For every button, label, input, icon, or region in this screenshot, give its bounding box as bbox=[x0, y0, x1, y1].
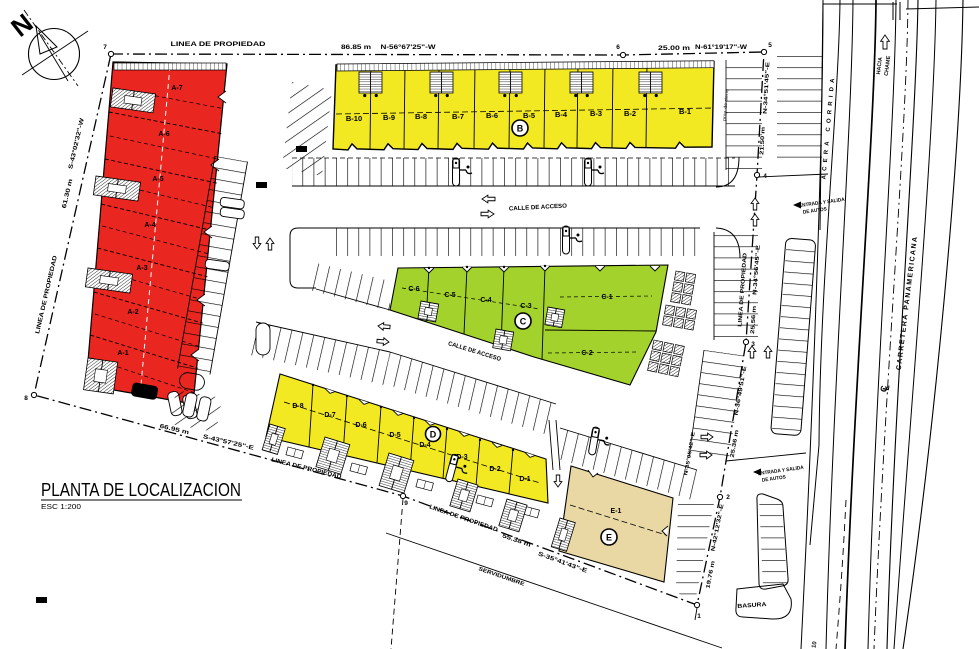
svg-text:2: 2 bbox=[726, 494, 730, 501]
svg-text:D-2: D-2 bbox=[489, 466, 500, 473]
svg-text:A-2: A-2 bbox=[127, 309, 138, 316]
svg-text:25.00 m: 25.00 m bbox=[658, 45, 690, 52]
svg-text:A-7: A-7 bbox=[171, 85, 182, 92]
svg-text:D-8: D-8 bbox=[292, 403, 303, 410]
svg-text:D-7: D-7 bbox=[324, 412, 335, 419]
svg-text:9: 9 bbox=[404, 500, 408, 507]
svg-text:C: C bbox=[520, 317, 527, 327]
svg-text:1: 1 bbox=[697, 613, 701, 620]
svg-text:B: B bbox=[517, 124, 524, 134]
svg-text:B-10: B-10 bbox=[346, 114, 362, 123]
svg-text:C-6: C-6 bbox=[408, 286, 419, 293]
svg-text:7: 7 bbox=[103, 44, 107, 51]
svg-text:A-3: A-3 bbox=[136, 265, 147, 272]
svg-text:B-7: B-7 bbox=[452, 112, 464, 121]
svg-text:ESC 1:200: ESC 1:200 bbox=[41, 502, 81, 511]
svg-text:B-6: B-6 bbox=[486, 111, 498, 120]
svg-text:B-5: B-5 bbox=[523, 111, 535, 120]
svg-text:A-6: A-6 bbox=[158, 131, 169, 138]
svg-text:N-56°67'25"-W: N-56°67'25"-W bbox=[381, 43, 437, 51]
svg-text:C-4: C-4 bbox=[480, 297, 491, 304]
svg-text:E: E bbox=[606, 533, 612, 543]
svg-text:D-4: D-4 bbox=[419, 442, 430, 449]
svg-text:C-1: C-1 bbox=[601, 294, 612, 301]
svg-text:N-61°19'17"-W: N-61°19'17"-W bbox=[695, 43, 748, 51]
svg-text:86.85 m: 86.85 m bbox=[341, 44, 371, 51]
svg-text:A-4: A-4 bbox=[144, 222, 155, 229]
svg-text:PLANTA DE LOCALIZACION: PLANTA DE LOCALIZACION bbox=[41, 480, 241, 500]
svg-text:B-9: B-9 bbox=[383, 113, 395, 122]
svg-text:C-2: C-2 bbox=[581, 350, 592, 357]
svg-text:LINEA DE PROPIEDAD: LINEA DE PROPIEDAD bbox=[171, 41, 266, 48]
svg-text:C-3: C-3 bbox=[520, 303, 531, 310]
svg-text:5: 5 bbox=[768, 42, 772, 49]
svg-text:D-5: D-5 bbox=[389, 432, 400, 439]
svg-text:A-1: A-1 bbox=[117, 350, 128, 357]
svg-text:B-1: B-1 bbox=[679, 107, 691, 116]
svg-text:B-4: B-4 bbox=[555, 110, 568, 119]
svg-text:6: 6 bbox=[616, 44, 620, 51]
svg-text:8: 8 bbox=[24, 395, 28, 402]
svg-text:B-8: B-8 bbox=[415, 112, 427, 121]
svg-text:E-1: E-1 bbox=[611, 508, 622, 515]
svg-text:B-3: B-3 bbox=[590, 109, 602, 118]
svg-text:D-1: D-1 bbox=[519, 476, 530, 483]
svg-text:C-5: C-5 bbox=[444, 292, 455, 299]
svg-text:D-6: D-6 bbox=[355, 422, 366, 429]
svg-text:B-2: B-2 bbox=[624, 109, 636, 118]
svg-text:D: D bbox=[430, 430, 437, 440]
svg-text:A-5: A-5 bbox=[152, 176, 163, 183]
